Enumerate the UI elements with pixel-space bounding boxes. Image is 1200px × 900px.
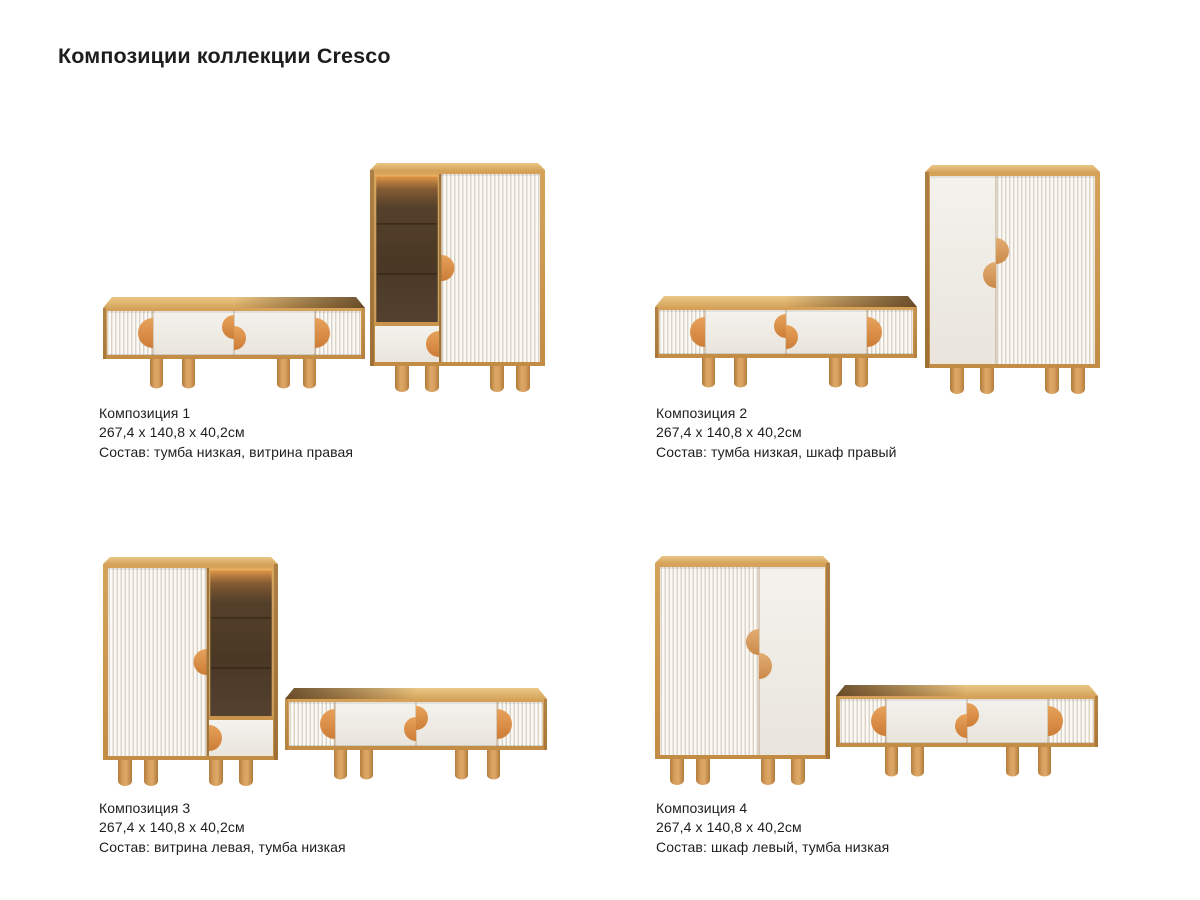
composition-contents: Состав: шкаф левый, тумба низкая	[656, 838, 889, 857]
composition-name: Композиция 4	[656, 799, 889, 818]
composition-4-lowboard-render	[836, 685, 1098, 777]
composition-1-caption: Композиция 1 267,4 x 140,8 x 40,2см Сост…	[99, 404, 353, 462]
composition-contents: Состав: витрина левая, тумба низкая	[99, 838, 346, 857]
catalog-page: Композиции коллекции Cresco	[0, 0, 1200, 900]
composition-2-lowboard-render	[655, 296, 917, 388]
composition-name: Композиция 1	[99, 404, 353, 423]
composition-dimensions: 267,4 x 140,8 x 40,2см	[99, 423, 353, 442]
composition-contents: Состав: тумба низкая, витрина правая	[99, 443, 353, 462]
composition-3-vitrine-left-render	[103, 557, 278, 786]
composition-contents: Состав: тумба низкая, шкаф правый	[656, 443, 897, 462]
composition-1-lowboard-render	[103, 297, 365, 389]
composition-dimensions: 267,4 x 140,8 x 40,2см	[656, 818, 889, 837]
composition-3-caption: Композиция 3 267,4 x 140,8 x 40,2см Сост…	[99, 799, 346, 857]
composition-name: Композиция 3	[99, 799, 346, 818]
composition-3-lowboard-render	[285, 688, 547, 780]
composition-dimensions: 267,4 x 140,8 x 40,2см	[99, 818, 346, 837]
composition-2-cabinet-right-render	[925, 165, 1100, 394]
composition-4-caption: Композиция 4 267,4 x 140,8 x 40,2см Сост…	[656, 799, 889, 857]
composition-1-vitrine-right-render	[370, 163, 545, 392]
composition-name: Композиция 2	[656, 404, 897, 423]
composition-dimensions: 267,4 x 140,8 x 40,2см	[656, 423, 897, 442]
composition-4-cabinet-left-render	[655, 556, 830, 785]
composition-2-caption: Композиция 2 267,4 x 140,8 x 40,2см Сост…	[656, 404, 897, 462]
